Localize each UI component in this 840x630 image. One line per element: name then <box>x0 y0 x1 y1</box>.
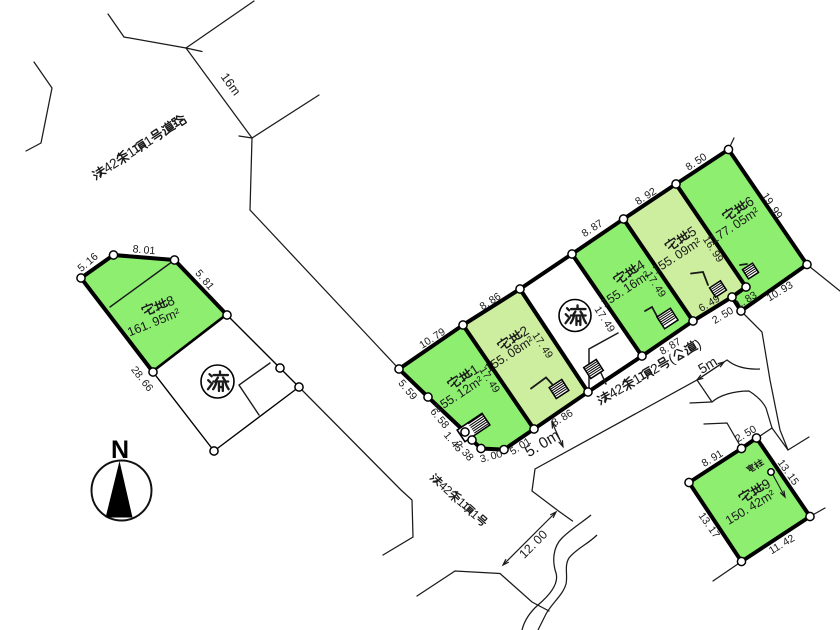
svg-text:8. 01: 8. 01 <box>132 243 156 257</box>
svg-text:N: N <box>111 436 129 464</box>
